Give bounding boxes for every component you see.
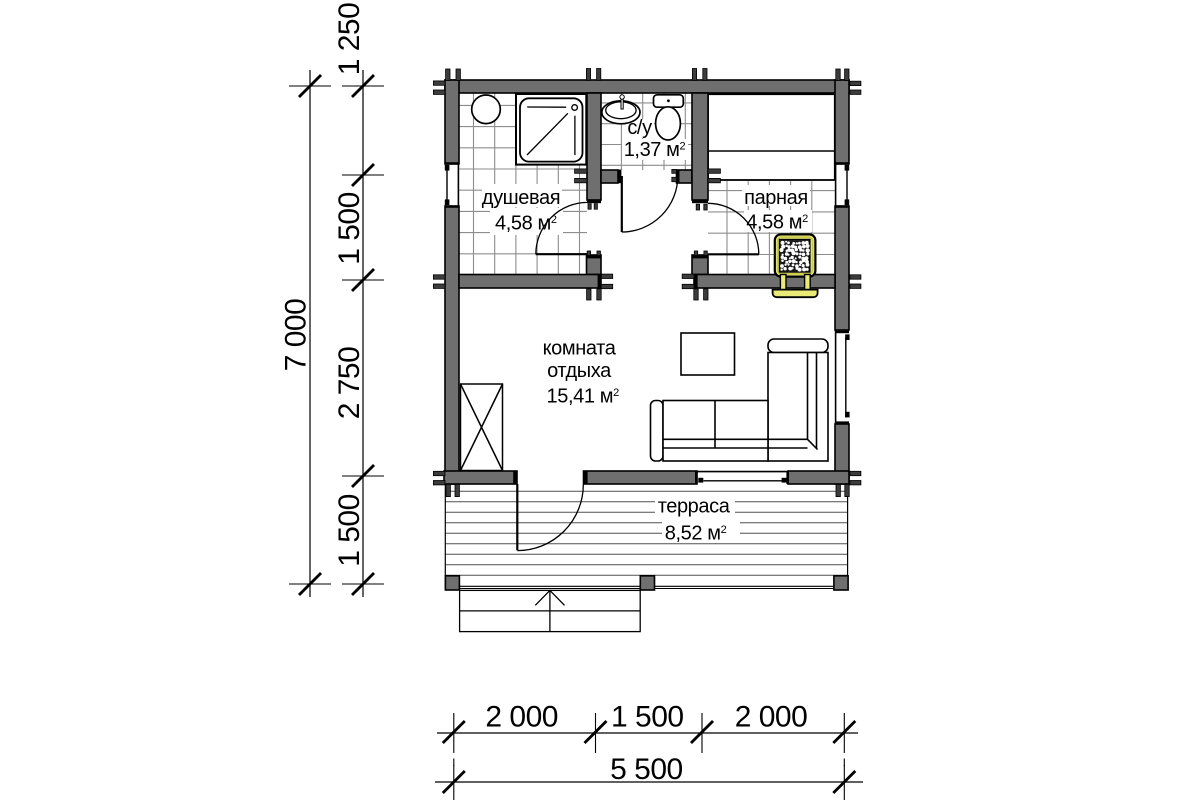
svg-text:7 000: 7 000 <box>280 299 313 372</box>
svg-text:4,58 м2: 4,58 м2 <box>495 213 557 235</box>
svg-text:1 500: 1 500 <box>611 701 684 734</box>
svg-text:1 500: 1 500 <box>333 494 366 567</box>
svg-text:1 250: 1 250 <box>333 3 366 76</box>
svg-text:2 750: 2 750 <box>333 347 366 420</box>
svg-text:комната: комната <box>543 338 617 360</box>
svg-text:душевая: душевая <box>482 187 560 209</box>
svg-text:парная: парная <box>744 187 808 209</box>
svg-text:15,41 м2: 15,41 м2 <box>547 386 620 408</box>
svg-text:8,52 м2: 8,52 м2 <box>665 523 727 545</box>
svg-text:5 500: 5 500 <box>610 753 683 786</box>
svg-text:1 500: 1 500 <box>333 192 366 265</box>
svg-text:4,58 м2: 4,58 м2 <box>746 212 808 234</box>
svg-text:1,37 м2: 1,37 м2 <box>624 139 686 161</box>
svg-text:2 000: 2 000 <box>735 701 808 734</box>
svg-text:отдыха: отдыха <box>547 360 612 382</box>
svg-text:2 000: 2 000 <box>485 701 558 734</box>
svg-text:терраса: терраса <box>658 495 731 517</box>
